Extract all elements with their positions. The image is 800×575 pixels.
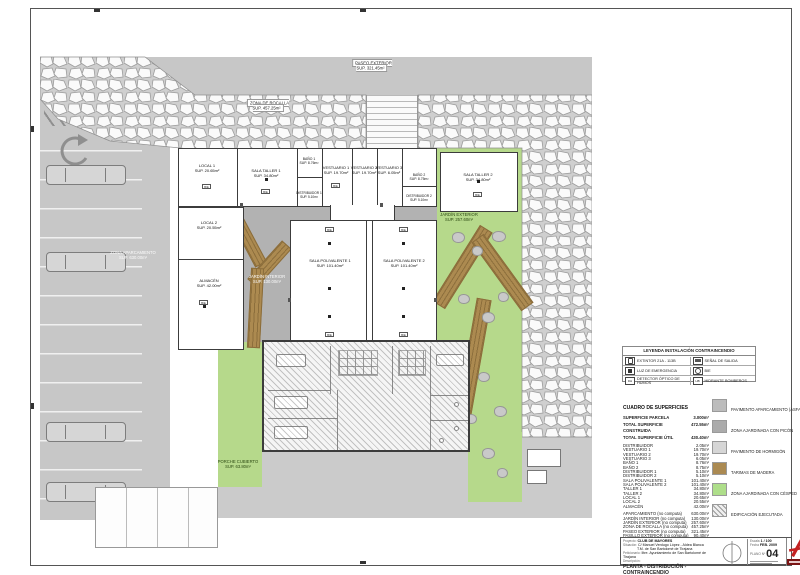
extinguisher-symbol xyxy=(434,298,437,302)
smoke-detector-symbol xyxy=(328,242,331,245)
room-label: SALA POLIVALENTE 2SUP. 101.40m² xyxy=(383,258,425,268)
bie-symbol: BIE xyxy=(261,189,270,194)
area-label: ZONA APARCAMIENTOSUP. 630.00m² xyxy=(110,250,155,261)
field-label: Situación: xyxy=(623,543,637,547)
area-label: JARDÍN INTERIORSUP. 130.00m² xyxy=(249,274,285,285)
room-label: VESTUARIO 1SUP. 19.70m² xyxy=(323,165,349,175)
swatch-label: TARIMAS DE MADERA xyxy=(731,470,774,475)
plan-number: 04 xyxy=(766,548,778,560)
extinguisher-symbol xyxy=(288,298,291,302)
swatch-madera xyxy=(712,462,727,475)
smoke-detector-icon: DH xyxy=(625,377,635,385)
smoke-detector-symbol xyxy=(265,178,268,181)
boulder xyxy=(482,312,495,323)
bed-icon xyxy=(274,396,308,409)
materials-legend: PAVIMENTO APARCAMIENTO (ASFALTO) ZONA AJ… xyxy=(712,399,795,534)
field-label: Descripción: xyxy=(623,559,641,563)
halls-block xyxy=(290,220,437,345)
room-label: LOCAL 2SUP. 20.55m² xyxy=(197,220,222,230)
area-label: JARDÍN EXTERIORSUP. 257.60m² xyxy=(440,212,478,223)
tables-icon xyxy=(338,350,378,376)
swatch-label: PAVIMENTO DE HORMIGÓN xyxy=(731,449,785,454)
tables-icon xyxy=(398,350,426,376)
smoke-detector-symbol xyxy=(402,287,405,290)
legend-detector: DH DETECTOR ÓPTICO DE HUMOS xyxy=(623,377,690,385)
extinguisher-symbol xyxy=(240,203,243,207)
bie-symbol: BIE xyxy=(325,227,334,232)
room-label: BAÑO 2SUP. 8.75m² xyxy=(410,173,429,182)
swatch-label: ZONA AJARDINADA CON CÉSPED xyxy=(731,491,797,496)
date-value: FEB. 2009 xyxy=(760,543,777,547)
legend-hidrante: HB HIDRANTE BOMBEROS xyxy=(690,377,756,385)
smoke-detector-symbol xyxy=(328,315,331,318)
area-label: ZONA DE ROCALLASUP. 457.25m² xyxy=(247,100,289,111)
boulder xyxy=(452,232,465,243)
room-label: ALMACÉNSUP. 42.00m² xyxy=(197,278,222,288)
title-block-fields: Proyecto: CLUB DE MAYORES Situación: C/ … xyxy=(623,539,717,565)
service-structure xyxy=(527,470,547,484)
architect-logo xyxy=(786,538,800,566)
bie-symbol: BIE xyxy=(399,227,408,232)
boulder xyxy=(472,246,483,256)
bed-icon xyxy=(436,354,464,366)
room-label: DISTRIBUIDOR 2SUP. 5.10m² xyxy=(406,194,432,202)
fire-legend-title: LEYENDA INSTALACIÓN CONTRAINCENDIO xyxy=(623,347,755,356)
legend-bie: BIE xyxy=(690,367,756,375)
drawing-title: PLANTA - DISTRIBUCIÓN - CONTRAINCENDIO xyxy=(623,564,717,575)
title-block-meta: Escala 1 / 100 Fecha FEB. 2009 PLANO Nº … xyxy=(747,539,785,565)
boulder xyxy=(492,231,506,242)
boulder xyxy=(482,448,495,459)
fire-legend: LEYENDA INSTALACIÓN CONTRAINCENDIO EXTIN… xyxy=(622,346,756,382)
boulder xyxy=(497,468,508,478)
logo-glyph xyxy=(787,538,800,558)
smoke-detector-symbol xyxy=(203,305,206,308)
compass-symbol xyxy=(719,541,745,565)
legend-emergencia: LUZ DE EMERGENCIA xyxy=(623,367,690,375)
boulder xyxy=(494,406,507,417)
smoke-detector-symbol xyxy=(402,242,405,245)
room-label: SALA POLIVALENTE 1SUP. 101.40m² xyxy=(309,258,351,268)
room-label: LOCAL 1SUP. 20.65m² xyxy=(195,163,220,173)
legend-salida: SEÑAL DE SALIDA xyxy=(690,357,756,365)
bie-symbol: BIE xyxy=(473,192,482,197)
wc-icon xyxy=(454,402,459,407)
bie-symbol: BIE xyxy=(331,183,340,188)
hydrant-icon: HB xyxy=(693,377,703,385)
bie-symbol: BIE xyxy=(325,332,334,337)
existing-building xyxy=(262,340,470,452)
wc-icon xyxy=(439,438,444,443)
swatch-hormigon xyxy=(712,441,727,454)
bie-symbol: BIE xyxy=(202,184,211,189)
pergola-outline xyxy=(95,487,218,548)
room-label: VESTUARIO 3SUP. 6.05m² xyxy=(376,165,402,175)
swatch-picon xyxy=(712,420,727,433)
site-plan: BIE BIE BIE BIE BIE BIE BIE BIE BIE LOCA… xyxy=(0,0,615,575)
boulder xyxy=(478,372,490,382)
swatch-label: ZONA AJARDINADA CON PICÓN xyxy=(731,428,793,433)
swatch-label: EDIFICACIÓN EJECUTADA xyxy=(731,512,783,517)
boulder xyxy=(498,292,509,302)
swatch-ejecutada xyxy=(712,504,727,517)
bie-icon xyxy=(693,367,703,375)
surfaces-table: CUADRO DE SUPERFICIES SUPERFICIE PARCELA… xyxy=(623,405,713,538)
wc-icon xyxy=(454,426,459,431)
area-label: PASEO EXTERIORSUP. 321.45m² xyxy=(352,60,392,71)
legend-extintor: EXTINTOR 21A - 113B xyxy=(623,357,690,365)
boulder xyxy=(458,294,470,304)
bie-symbol: BIE xyxy=(399,332,408,337)
swatch-asfalto xyxy=(712,399,727,412)
room-label: VESTUARIO 2SUP. 19.70m² xyxy=(351,165,377,175)
plan-number-label: PLANO Nº xyxy=(750,552,765,556)
room-label: SALA TALLER 2SUP. 34.80m² xyxy=(463,172,492,182)
swatch-label: PAVIMENTO APARCAMIENTO (ASFALTO) xyxy=(731,407,800,412)
exit-sign-icon xyxy=(693,357,703,365)
fine-print xyxy=(750,561,778,562)
drawing-sheet: BIE BIE BIE BIE BIE BIE BIE BIE BIE LOCA… xyxy=(0,0,800,575)
bed-icon xyxy=(276,354,306,367)
smoke-detector-symbol xyxy=(402,315,405,318)
service-structure xyxy=(527,449,561,467)
bed-icon xyxy=(274,426,308,439)
room-label: SALA TALLER 1SUP. 34.80m² xyxy=(251,168,280,178)
area-label: PORCHE CUBIERTOSUP. 63.80m² xyxy=(218,459,259,470)
title-block: Proyecto: CLUB DE MAYORES Situación: C/ … xyxy=(620,537,792,565)
fine-print xyxy=(750,563,772,564)
room-label: BAÑO 1SUP. 8.76m² xyxy=(300,157,319,166)
emergency-light-icon xyxy=(625,367,635,375)
logo-banner xyxy=(787,559,800,565)
extinguisher-icon xyxy=(625,357,635,365)
jardin-exterior-lower xyxy=(468,432,522,502)
room-label: DISTRIBUIDOR 1SUP. 5.10m² xyxy=(296,191,322,199)
extinguisher-symbol xyxy=(380,203,383,207)
smoke-detector-symbol xyxy=(328,287,331,290)
date-label: Fecha xyxy=(750,543,759,547)
swatch-cesped xyxy=(712,483,727,496)
